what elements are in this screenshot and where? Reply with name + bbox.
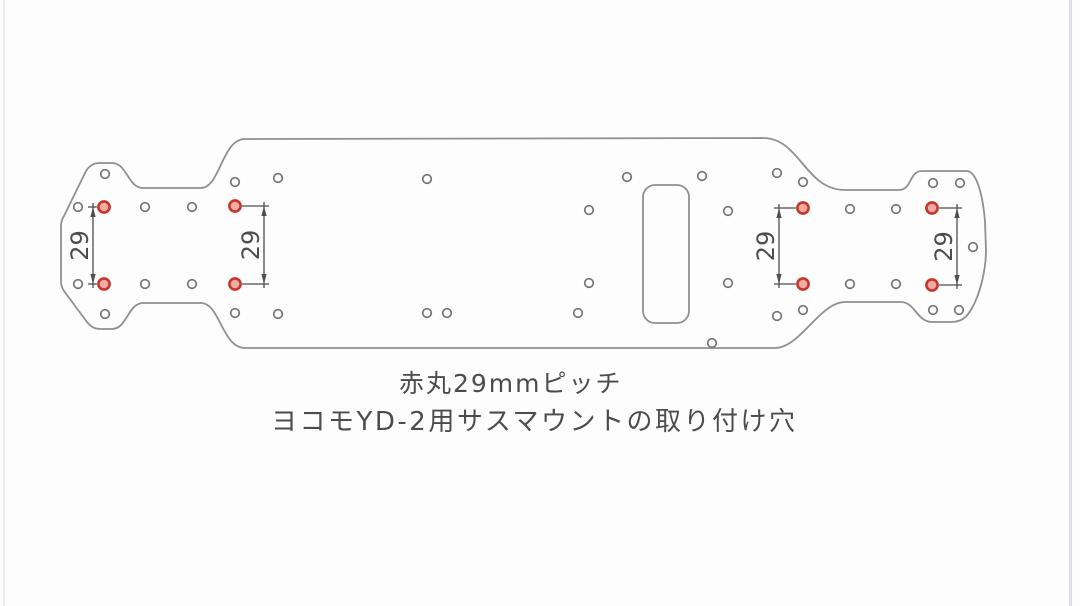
mount-hole [74,280,83,289]
dim-label-29: 29 [66,230,94,261]
sus-mount-hole-red [229,278,240,289]
mount-hole [955,306,964,315]
dim-arrow-up [776,208,781,218]
mount-hole [892,280,901,289]
sus-mount-hole-red [98,278,109,289]
mount-hole [141,280,150,289]
mount-hole [585,279,594,288]
dim-arrow-down [261,274,266,284]
caption-red-circle-pitch: 赤丸29mmピッチ [399,364,623,400]
mount-hole [585,206,594,215]
dim-arrow-up [954,208,959,218]
mount-hole [231,309,240,318]
mount-hole [101,170,110,179]
mount-hole [929,306,938,315]
dim-label-29: 29 [237,230,265,261]
mount-hole [773,312,782,321]
sus-mount-hole-red [229,200,240,211]
sus-mount-hole-red [926,202,937,213]
dim-label-29: 29 [752,231,780,262]
mount-hole [773,169,782,178]
mount-hole [969,243,978,252]
mount-hole [141,203,150,212]
mount-hole [892,205,901,214]
sus-mount-hole-red [797,278,808,289]
mount-hole [799,178,808,187]
mount-hole [724,279,733,288]
mount-hole [101,310,110,319]
mount-hole [443,309,452,318]
dim-arrow-down [776,274,781,284]
sus-mount-hole-red [926,279,937,290]
mount-hole [274,174,283,183]
mount-hole [956,179,965,188]
mount-hole [188,203,197,212]
mount-hole [846,205,855,214]
sus-mount-hole-red [98,201,109,212]
dim-label-29: 29 [930,231,958,262]
dim-arrow-down [90,274,95,284]
mount-hole [846,280,855,289]
mount-hole [274,310,283,319]
mount-hole [423,309,432,318]
mount-hole [574,309,583,318]
mount-hole [188,280,197,289]
sus-mount-hole-red [797,202,808,213]
dim-arrow-up [90,207,95,217]
center-slot-cutout [643,185,689,323]
mount-hole [708,339,717,348]
mount-hole [724,207,733,216]
dim-arrow-down [954,275,959,285]
mount-hole [799,306,808,315]
mount-hole [929,179,938,188]
mount-hole [74,203,83,212]
mount-hole [231,178,240,187]
scan-page: 29292929 赤丸29mmピッチ ヨコモYD-2用サスマウントの取り付け穴 [0,0,1080,606]
mount-hole [423,175,432,184]
dim-arrow-up [261,206,266,216]
mount-hole [623,173,632,182]
chassis-outline [61,138,986,348]
mount-hole [698,172,707,181]
caption-sus-mount-holes: ヨコモYD-2用サスマウントの取り付け穴 [271,401,798,438]
chassis-plate-drawing: 29292929 [0,0,1080,606]
